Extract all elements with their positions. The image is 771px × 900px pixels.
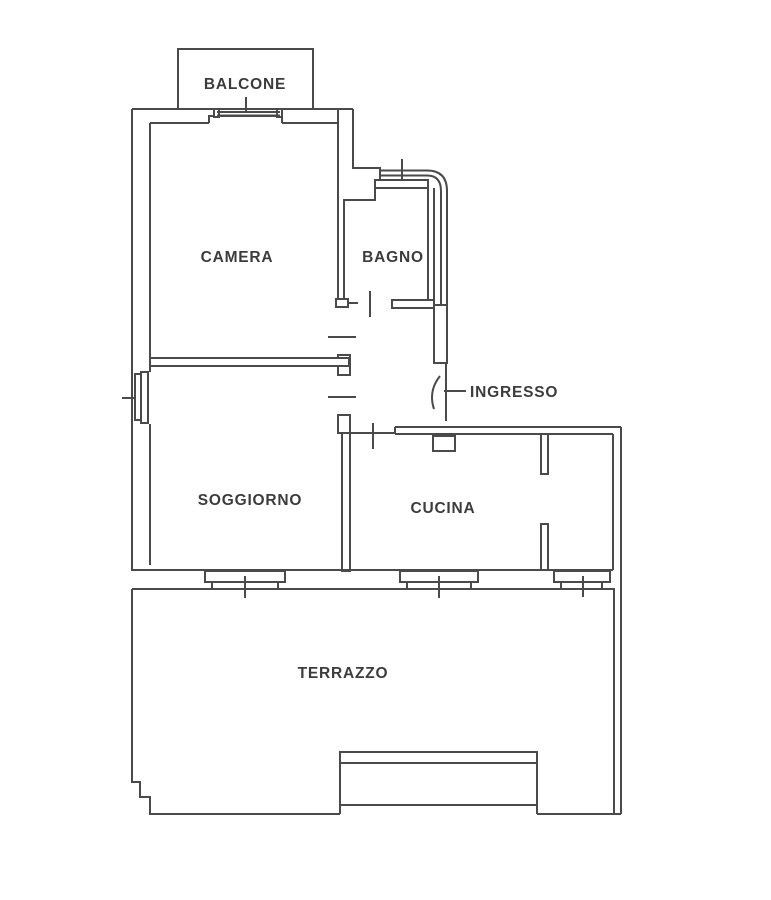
terrazzo-steps — [340, 752, 537, 814]
left-exterior-wall — [132, 109, 150, 571]
floor-plan-page: BALCONE CAMERA BAGNO INGRESSO SOGGIORNO … — [0, 0, 771, 900]
bagno-bottom-wall — [392, 300, 434, 308]
entrance-door-arc — [432, 376, 440, 409]
corridor-wall-piece-lower — [338, 415, 350, 433]
left-window-icon — [122, 372, 148, 423]
plan-lines — [122, 49, 621, 814]
right-exterior-wall — [613, 427, 621, 814]
windows — [122, 97, 610, 598]
soggiorno-cucina-wall — [342, 433, 350, 571]
floor-plan-svg: BALCONE CAMERA BAGNO INGRESSO SOGGIORNO … — [0, 0, 771, 900]
bagno-interior-walls — [344, 188, 434, 303]
room-label-camera: CAMERA — [201, 249, 274, 266]
walls — [132, 49, 621, 814]
bagno-outer-corner — [427, 171, 447, 306]
balcony-window-icon — [214, 97, 282, 117]
camera-soggiorno-wall — [150, 358, 349, 366]
entrance-door-post — [433, 436, 455, 451]
room-label-cucina: CUCINA — [410, 500, 475, 517]
cucina-window-left-icon — [400, 571, 478, 598]
entry-wall-block — [434, 305, 447, 363]
room-label-balcone: BALCONE — [204, 76, 286, 93]
room-label-terrazzo: TERRAZZO — [298, 665, 389, 682]
room-label-ingresso: INGRESSO — [470, 384, 558, 401]
soggiorno-window-icon — [205, 571, 285, 598]
cucina-window-right-icon — [554, 571, 610, 597]
cucina-top-wall — [350, 427, 621, 434]
cucina-partial-wall-lower — [541, 524, 548, 570]
camera-door-jamb — [336, 299, 348, 307]
terrazzo-outline — [132, 589, 621, 814]
bagno-window-icon — [375, 159, 428, 188]
cucina-partial-wall-upper — [541, 434, 548, 474]
room-label-bagno: BAGNO — [362, 249, 424, 266]
room-label-soggiorno: SOGGIORNO — [198, 492, 303, 509]
room-labels: BALCONE CAMERA BAGNO INGRESSO SOGGIORNO … — [198, 76, 558, 682]
